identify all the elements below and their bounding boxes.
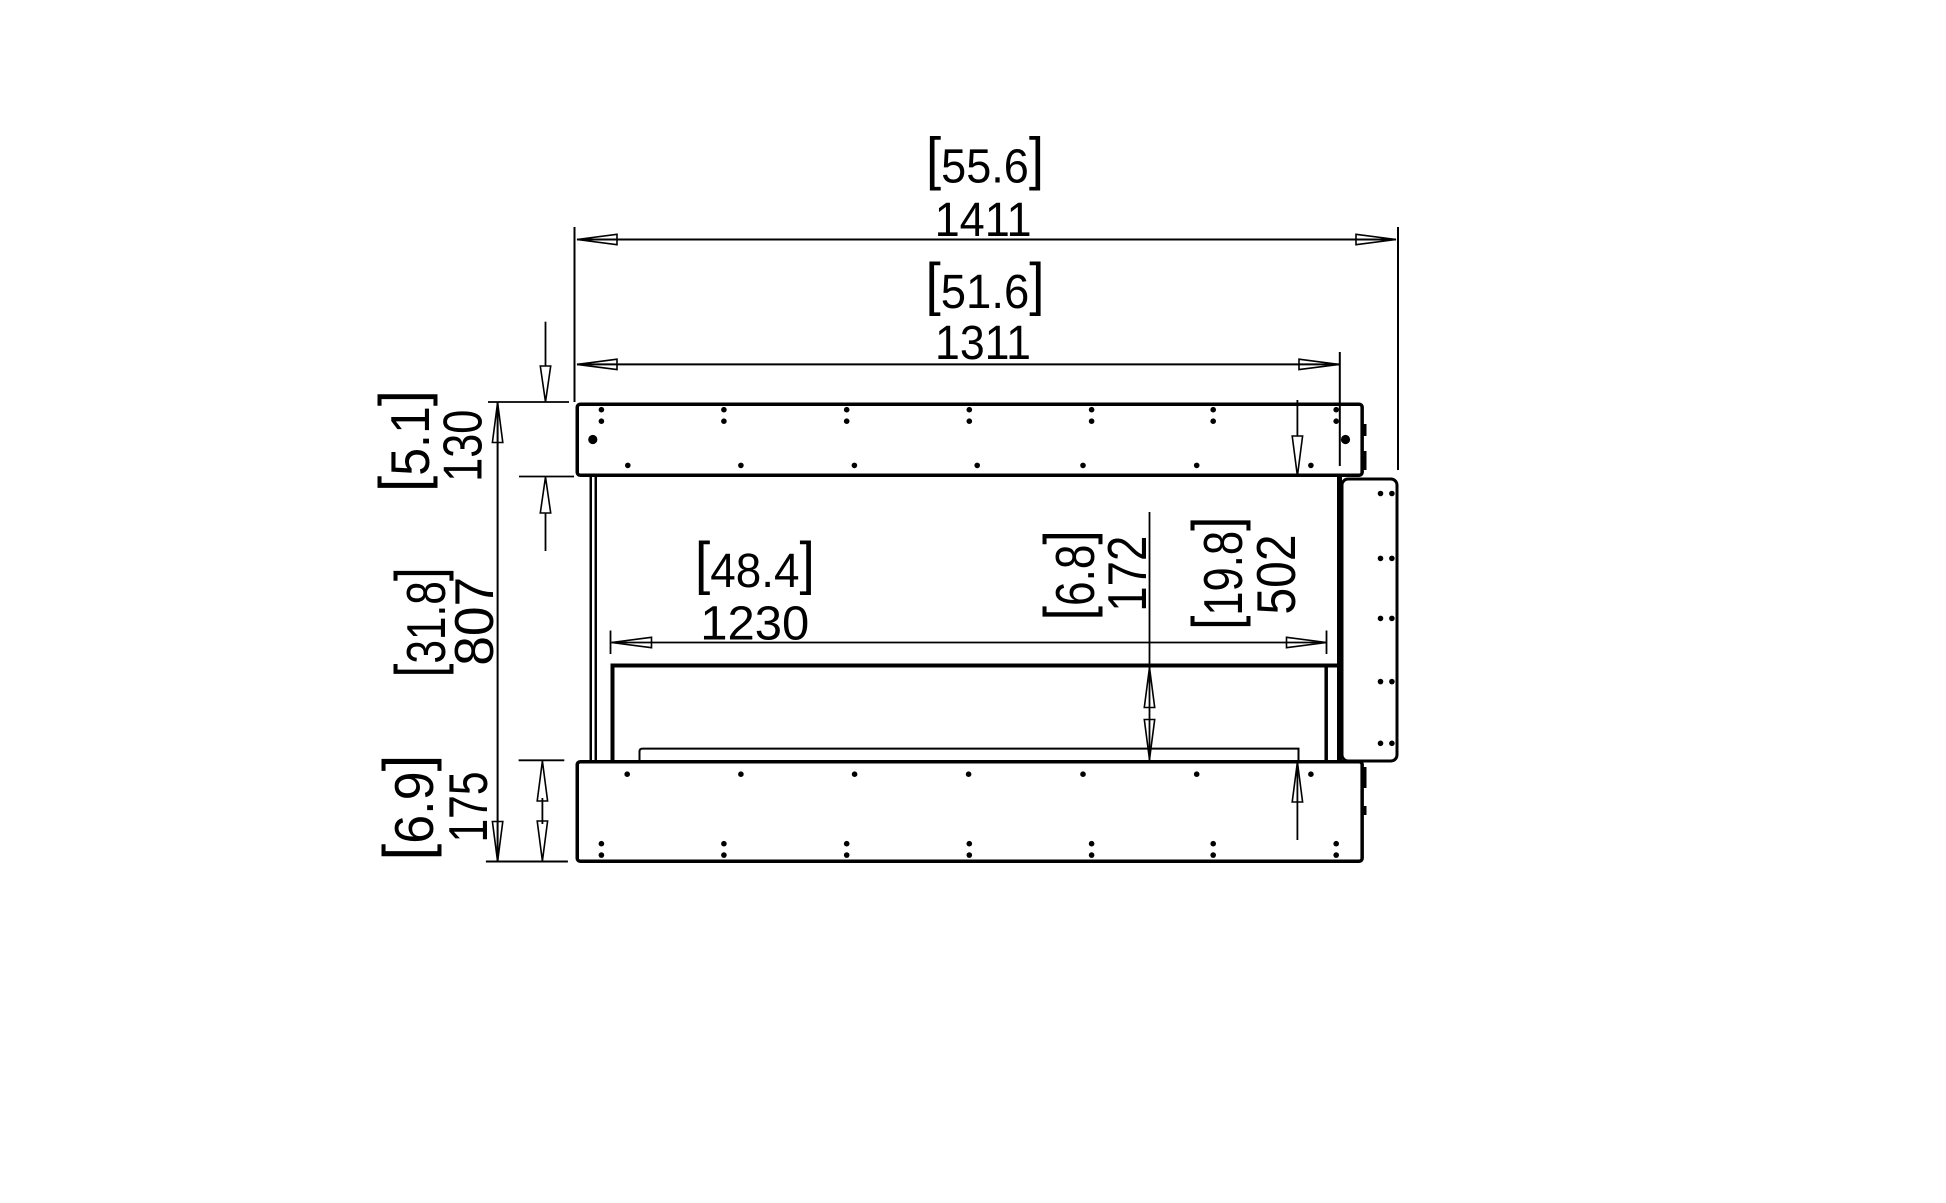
svg-text:1230: 1230 — [700, 597, 809, 650]
svg-text:130: 130 — [432, 410, 494, 482]
svg-text:1411: 1411 — [935, 194, 1032, 247]
svg-text:1311: 1311 — [935, 317, 1031, 370]
svg-text:175: 175 — [437, 772, 499, 843]
svg-text:502: 502 — [1245, 535, 1307, 615]
svg-text:807: 807 — [443, 577, 505, 666]
svg-text:172: 172 — [1096, 536, 1158, 612]
